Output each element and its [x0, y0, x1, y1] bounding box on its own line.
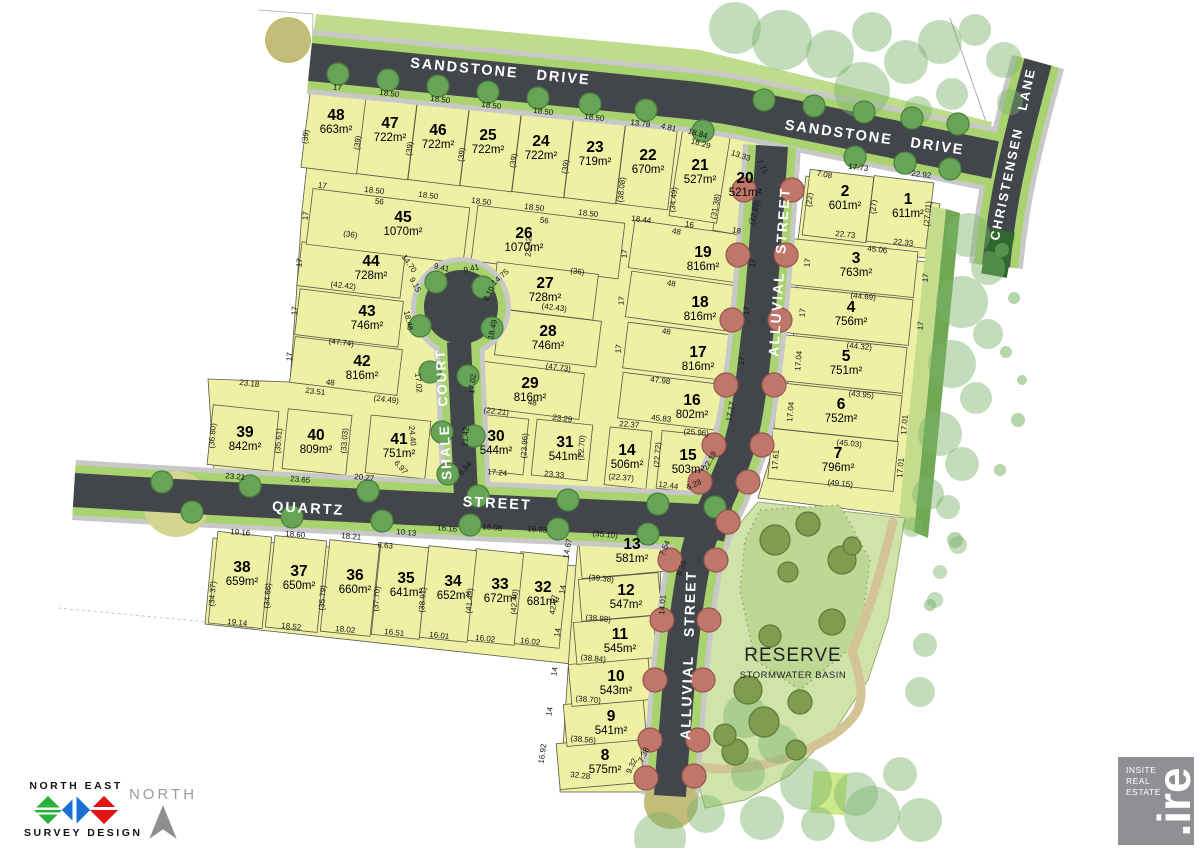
lot-6-area: 752m² — [825, 413, 858, 425]
lot-20-area: 521m² — [729, 187, 762, 199]
tree-canopy-icon — [918, 20, 962, 64]
red-diamond-icon — [90, 796, 118, 824]
dimension-label: (35.61) — [273, 428, 284, 454]
dimension-label: 17.01 — [895, 457, 906, 478]
tree-icon — [714, 373, 738, 397]
dimension-label: 20.27 — [354, 472, 375, 483]
subdivision-plan-page: SANDSTONE DRIVESANDSTONE DRIVECHRISTENSE… — [0, 0, 1200, 848]
lot-37-area: 650m² — [283, 580, 316, 592]
dimension-label: (39) — [300, 129, 311, 145]
dimension-label: 48 — [325, 378, 335, 388]
dimension-label: 56 — [539, 216, 549, 226]
lot-5-number: 5 — [842, 348, 851, 365]
lot-41-number: 41 — [390, 431, 408, 448]
lot-17-number: 17 — [689, 344, 706, 361]
tree-icon — [796, 512, 820, 536]
lot-12-number: 12 — [617, 582, 634, 599]
tree-canopy-icon — [898, 798, 942, 842]
dimension-label: 17 — [803, 257, 813, 267]
lot-22-area: 670m² — [632, 164, 665, 176]
tree-canopy-icon — [928, 340, 976, 388]
lot-37-number: 37 — [290, 563, 307, 580]
lot-12-area: 547m² — [610, 599, 643, 611]
tree-icon — [647, 493, 669, 515]
lot-14-number: 14 — [618, 442, 636, 459]
lot-13-number: 13 — [623, 536, 641, 553]
tree-icon — [753, 89, 775, 111]
lot-16-number: 16 — [683, 392, 701, 409]
tree-icon — [819, 609, 845, 635]
dimension-label: 23.33 — [544, 469, 565, 480]
lot-24-area: 722m² — [525, 150, 558, 162]
dimension-label: (34.37) — [207, 581, 218, 607]
tree-canopy-icon — [852, 12, 892, 52]
shrub-icon — [994, 464, 1006, 476]
tree-icon — [843, 537, 861, 555]
lot-47-area: 722m² — [374, 132, 407, 144]
tree-icon — [786, 740, 806, 760]
dimension-label: (41.49) — [464, 588, 475, 614]
lot-5-area: 751m² — [830, 365, 863, 377]
tree-icon — [726, 243, 750, 267]
dimension-label: 17.61 — [770, 449, 781, 470]
dimension-label: 17.01 — [899, 414, 910, 435]
lot-36-number: 36 — [346, 567, 364, 584]
lot-8-area: 575m² — [589, 764, 622, 776]
lot-3-area: 763m² — [840, 267, 873, 279]
dimension-label: 24.40 — [407, 425, 418, 446]
lot-6-number: 6 — [837, 396, 846, 413]
dimension-label: (42.40) — [509, 589, 520, 615]
dimension-label: 14.01 — [657, 594, 668, 615]
lot-28-area: 746m² — [532, 340, 565, 352]
dimension-label: (39) — [352, 135, 363, 151]
lot-27-number: 27 — [536, 275, 553, 292]
dimension-label: 17 — [295, 257, 305, 267]
reserve-labels: RESERVESTORMWATER BASIN — [740, 645, 847, 681]
dimension-label: 16.03 — [527, 524, 548, 535]
lot-4-area: 756m² — [835, 316, 868, 328]
lot-18-number: 18 — [691, 294, 709, 311]
lot-23-area: 719m² — [579, 156, 612, 168]
dimension-label: 48 — [527, 398, 537, 408]
lot-19-number: 19 — [694, 244, 712, 261]
dimension-label: 17 — [798, 307, 808, 317]
dimension-label: 17 — [614, 343, 624, 353]
lot-38-area: 659m² — [226, 576, 259, 588]
dimension-label: 10.13 — [396, 527, 417, 538]
tree-canopy-icon — [913, 633, 937, 657]
lot-2-area: 601m² — [829, 200, 862, 212]
dimension-label: 19.16 — [230, 527, 251, 538]
lot-21-area: 527m² — [684, 174, 717, 186]
tree-canopy-icon — [936, 276, 988, 328]
dimension-label: 18.60 — [285, 529, 306, 540]
tree-canopy-icon — [936, 78, 968, 110]
reserve-title: RESERVE — [744, 645, 841, 666]
tree-canopy-icon — [946, 213, 990, 257]
dimension-label: (37.70) — [371, 586, 382, 612]
lot-29-number: 29 — [521, 375, 539, 392]
shrub-icon — [1000, 346, 1012, 358]
dimension-label: 17.02 — [467, 373, 478, 394]
lot-39-number: 39 — [236, 424, 254, 441]
shrub-icon — [1017, 375, 1027, 385]
lot-43-area: 746m² — [351, 320, 384, 332]
tree-icon — [736, 470, 760, 494]
tree-icon — [749, 707, 779, 737]
lot-40-area: 809m² — [300, 444, 333, 456]
dimension-label: (36.80) — [207, 423, 218, 449]
tree-canopy-icon — [973, 319, 1003, 349]
lot-18-area: 816m² — [684, 311, 717, 323]
lot-14-area: 506m² — [611, 459, 644, 471]
dimension-label: 17 — [332, 83, 342, 93]
dimension-label: (38.91) — [417, 587, 428, 613]
dimension-label: 6.63 — [377, 540, 394, 550]
lot-9-area: 541m² — [595, 725, 628, 737]
dimension-label: 17.04 — [793, 350, 804, 371]
lot-38-number: 38 — [233, 559, 251, 576]
dimension-label: 17 — [301, 210, 311, 220]
lot-40-number: 40 — [307, 427, 324, 444]
tree-icon — [853, 101, 875, 123]
shrub-icon — [1011, 413, 1025, 427]
lot-21-number: 21 — [691, 157, 709, 174]
lot-31-number: 31 — [556, 434, 574, 451]
dimension-label: 23.42 — [523, 236, 533, 257]
tree-canopy-icon — [740, 796, 784, 840]
lot-33-number: 33 — [491, 576, 509, 593]
tree-canopy-icon — [960, 382, 992, 414]
lot-36-area: 660m² — [339, 584, 372, 596]
tree-icon — [759, 625, 781, 647]
lot-23-number: 23 — [586, 139, 604, 156]
tree-icon — [939, 158, 961, 180]
lot-24-number: 24 — [532, 133, 550, 150]
north-arrow-icon — [143, 803, 183, 841]
shrub-icon — [924, 599, 936, 611]
tree-icon — [704, 548, 728, 572]
lot-15-area: 503m² — [672, 464, 705, 476]
tree-icon — [720, 308, 744, 332]
dimension-label: (39) — [560, 159, 571, 175]
lot-9-number: 9 — [607, 708, 616, 725]
logo-diamonds — [24, 797, 128, 823]
dimension-label: 22.37 — [619, 419, 640, 430]
tree-icon — [547, 518, 569, 540]
shrub-icon — [947, 532, 963, 548]
lot-30-area: 544m² — [480, 445, 513, 457]
lot-15-number: 15 — [679, 447, 697, 464]
lot-39-area: 842m² — [229, 441, 262, 453]
tree-canopy-icon — [801, 807, 835, 841]
dimension-label: (22) — [804, 192, 814, 207]
dimension-label: 56 — [374, 197, 384, 207]
lot-35-number: 35 — [397, 570, 415, 587]
dimension-label: 45.83 — [651, 413, 672, 424]
dimension-label: 17.02 — [413, 372, 424, 393]
tree-icon — [901, 107, 923, 129]
tree-canopy-icon — [933, 565, 947, 579]
tree-icon — [716, 510, 740, 534]
dimension-label: 21.42 — [460, 426, 471, 447]
lot-25-number: 25 — [479, 127, 497, 144]
tree-canopy-icon — [986, 42, 1022, 78]
tree-icon — [682, 764, 706, 788]
lot-7-number: 7 — [834, 445, 843, 462]
tree-icon — [762, 373, 786, 397]
lot-45-area: 1070m² — [384, 226, 423, 238]
dimension-label: (27) — [868, 199, 878, 214]
lot-42-area: 816m² — [346, 370, 379, 382]
tree-icon — [557, 489, 579, 511]
lot-28-number: 28 — [539, 323, 557, 340]
tree-icon — [750, 433, 774, 457]
tree-icon — [760, 525, 790, 555]
dimension-label: 17 — [617, 295, 627, 305]
lot-16-area: 802m² — [676, 409, 709, 421]
dimension-label: 23.21 — [225, 471, 246, 482]
lot-11-area: 545m² — [604, 643, 637, 655]
lot-25-area: 722m² — [472, 144, 505, 156]
shrub-icon — [1008, 292, 1020, 304]
dimension-label: (33.03) — [339, 428, 350, 454]
lot-13-area: 581m² — [616, 553, 649, 565]
tree-icon — [181, 501, 203, 523]
dimension-label: (39) — [404, 141, 415, 157]
dimension-label: 16.08 — [482, 522, 503, 533]
tree-icon — [947, 113, 969, 135]
dimension-label: 17 — [317, 181, 327, 191]
dimension-label: (22.70) — [576, 435, 587, 461]
tree-canopy-icon — [780, 758, 832, 810]
tree-canopy-icon — [959, 14, 991, 46]
dimension-label: 17.24 — [487, 467, 508, 478]
lot-44-number: 44 — [362, 253, 380, 270]
logo-text-survey-design: SURVEY DESIGN — [24, 827, 128, 839]
tree-icon — [371, 510, 393, 532]
lot-48-number: 48 — [327, 107, 345, 124]
lot-43-number: 43 — [358, 303, 376, 320]
dimension-label: 16.16 — [437, 523, 458, 534]
tree-icon — [643, 668, 667, 692]
lot-44-area: 728m² — [355, 270, 388, 282]
tree-icon — [714, 724, 736, 746]
tree-icon — [697, 608, 721, 632]
green-diamond-icon — [34, 796, 62, 824]
lot-22-number: 22 — [639, 147, 656, 164]
logo-text-north-east: NORTH EAST — [24, 780, 128, 792]
tree-canopy-icon — [905, 677, 935, 707]
tree-canopy-icon — [844, 786, 900, 842]
dimension-label: (39) — [508, 153, 519, 169]
lot-11-number: 11 — [612, 626, 629, 643]
dimension-label: 17.04 — [785, 401, 796, 422]
lot-1-area: 611m² — [892, 208, 924, 220]
dimension-label: (34.66) — [262, 583, 273, 609]
dimension-label: (23.96) — [519, 433, 530, 459]
lot-17-area: 816m² — [682, 361, 715, 373]
lot-10-number: 10 — [607, 668, 624, 685]
dimension-label: (35.79) — [317, 585, 328, 611]
dimension-label: (39) — [456, 147, 467, 163]
dimension-label: 17 — [290, 305, 300, 315]
dimension-label: 48 — [666, 278, 677, 288]
tree-icon — [459, 514, 481, 536]
dimension-label: 17 — [737, 355, 747, 365]
dimension-label: 17 — [748, 257, 758, 267]
lot-1-number: 1 — [904, 191, 913, 208]
ire-wordmark: .ire — [1133, 776, 1200, 828]
tree-canopy-icon — [945, 447, 979, 481]
dimension-label: 17 — [285, 351, 295, 361]
dimension-label: 17 — [921, 272, 931, 282]
tree-icon — [803, 95, 825, 117]
dimension-label: 18.21 — [341, 531, 362, 542]
tree-icon — [778, 562, 798, 582]
dimension-label: (22.72) — [652, 442, 663, 468]
dimension-label: 23.65 — [290, 474, 311, 485]
tree-icon — [788, 690, 812, 714]
subdivision-plan-map: SANDSTONE DRIVESANDSTONE DRIVECHRISTENSE… — [0, 0, 1200, 848]
lot-32-number: 32 — [534, 579, 551, 596]
lot-20-number: 20 — [736, 170, 753, 187]
dimension-label: 48 — [661, 326, 672, 336]
tree-canopy-icon — [902, 517, 922, 537]
reserve-subtitle: STORMWATER BASIN — [740, 670, 847, 681]
lot-45-number: 45 — [394, 209, 412, 226]
blue-diamond-icon — [62, 796, 90, 824]
insite-real-estate-logo: INSITE REAL ESTATE .ire — [1118, 757, 1194, 845]
tree-canopy-icon — [883, 757, 917, 791]
dimension-label: 17 — [742, 305, 752, 315]
tree-icon — [357, 480, 379, 502]
tree-canopy-icon — [936, 495, 960, 519]
lot-19-area: 816m² — [687, 261, 720, 273]
tree-icon — [425, 271, 447, 293]
lot-47-number: 47 — [381, 115, 398, 132]
dimension-label: 17 — [620, 248, 630, 258]
tree-icon — [327, 63, 349, 85]
lot-10-area: 543m² — [600, 685, 633, 697]
tree-canopy-icon — [687, 795, 725, 833]
lot-46-number: 46 — [429, 122, 447, 139]
lot-7-area: 796m² — [822, 462, 855, 474]
north-indicator: NORTH — [126, 786, 200, 846]
lot-48-area: 663m² — [320, 124, 353, 136]
dimension-label: 17 — [916, 320, 926, 330]
lot-46-area: 722m² — [422, 139, 455, 151]
lot-3-number: 3 — [852, 250, 861, 267]
north-east-survey-design-logo: NORTH EAST SURVEY DESIGN — [24, 780, 128, 839]
lot-34-number: 34 — [444, 573, 462, 590]
tree-canopy-icon — [752, 10, 812, 70]
tree-icon — [634, 766, 658, 790]
road-end-circle — [265, 17, 311, 63]
lot-2-number: 2 — [841, 183, 850, 200]
lot-8-number: 8 — [601, 747, 610, 764]
lot-30-number: 30 — [487, 428, 504, 445]
lot-42-number: 42 — [353, 353, 370, 370]
shrub-icon — [995, 243, 1009, 257]
lot-4-number: 4 — [847, 299, 856, 316]
tree-icon — [151, 471, 173, 493]
north-label: NORTH — [126, 786, 200, 803]
